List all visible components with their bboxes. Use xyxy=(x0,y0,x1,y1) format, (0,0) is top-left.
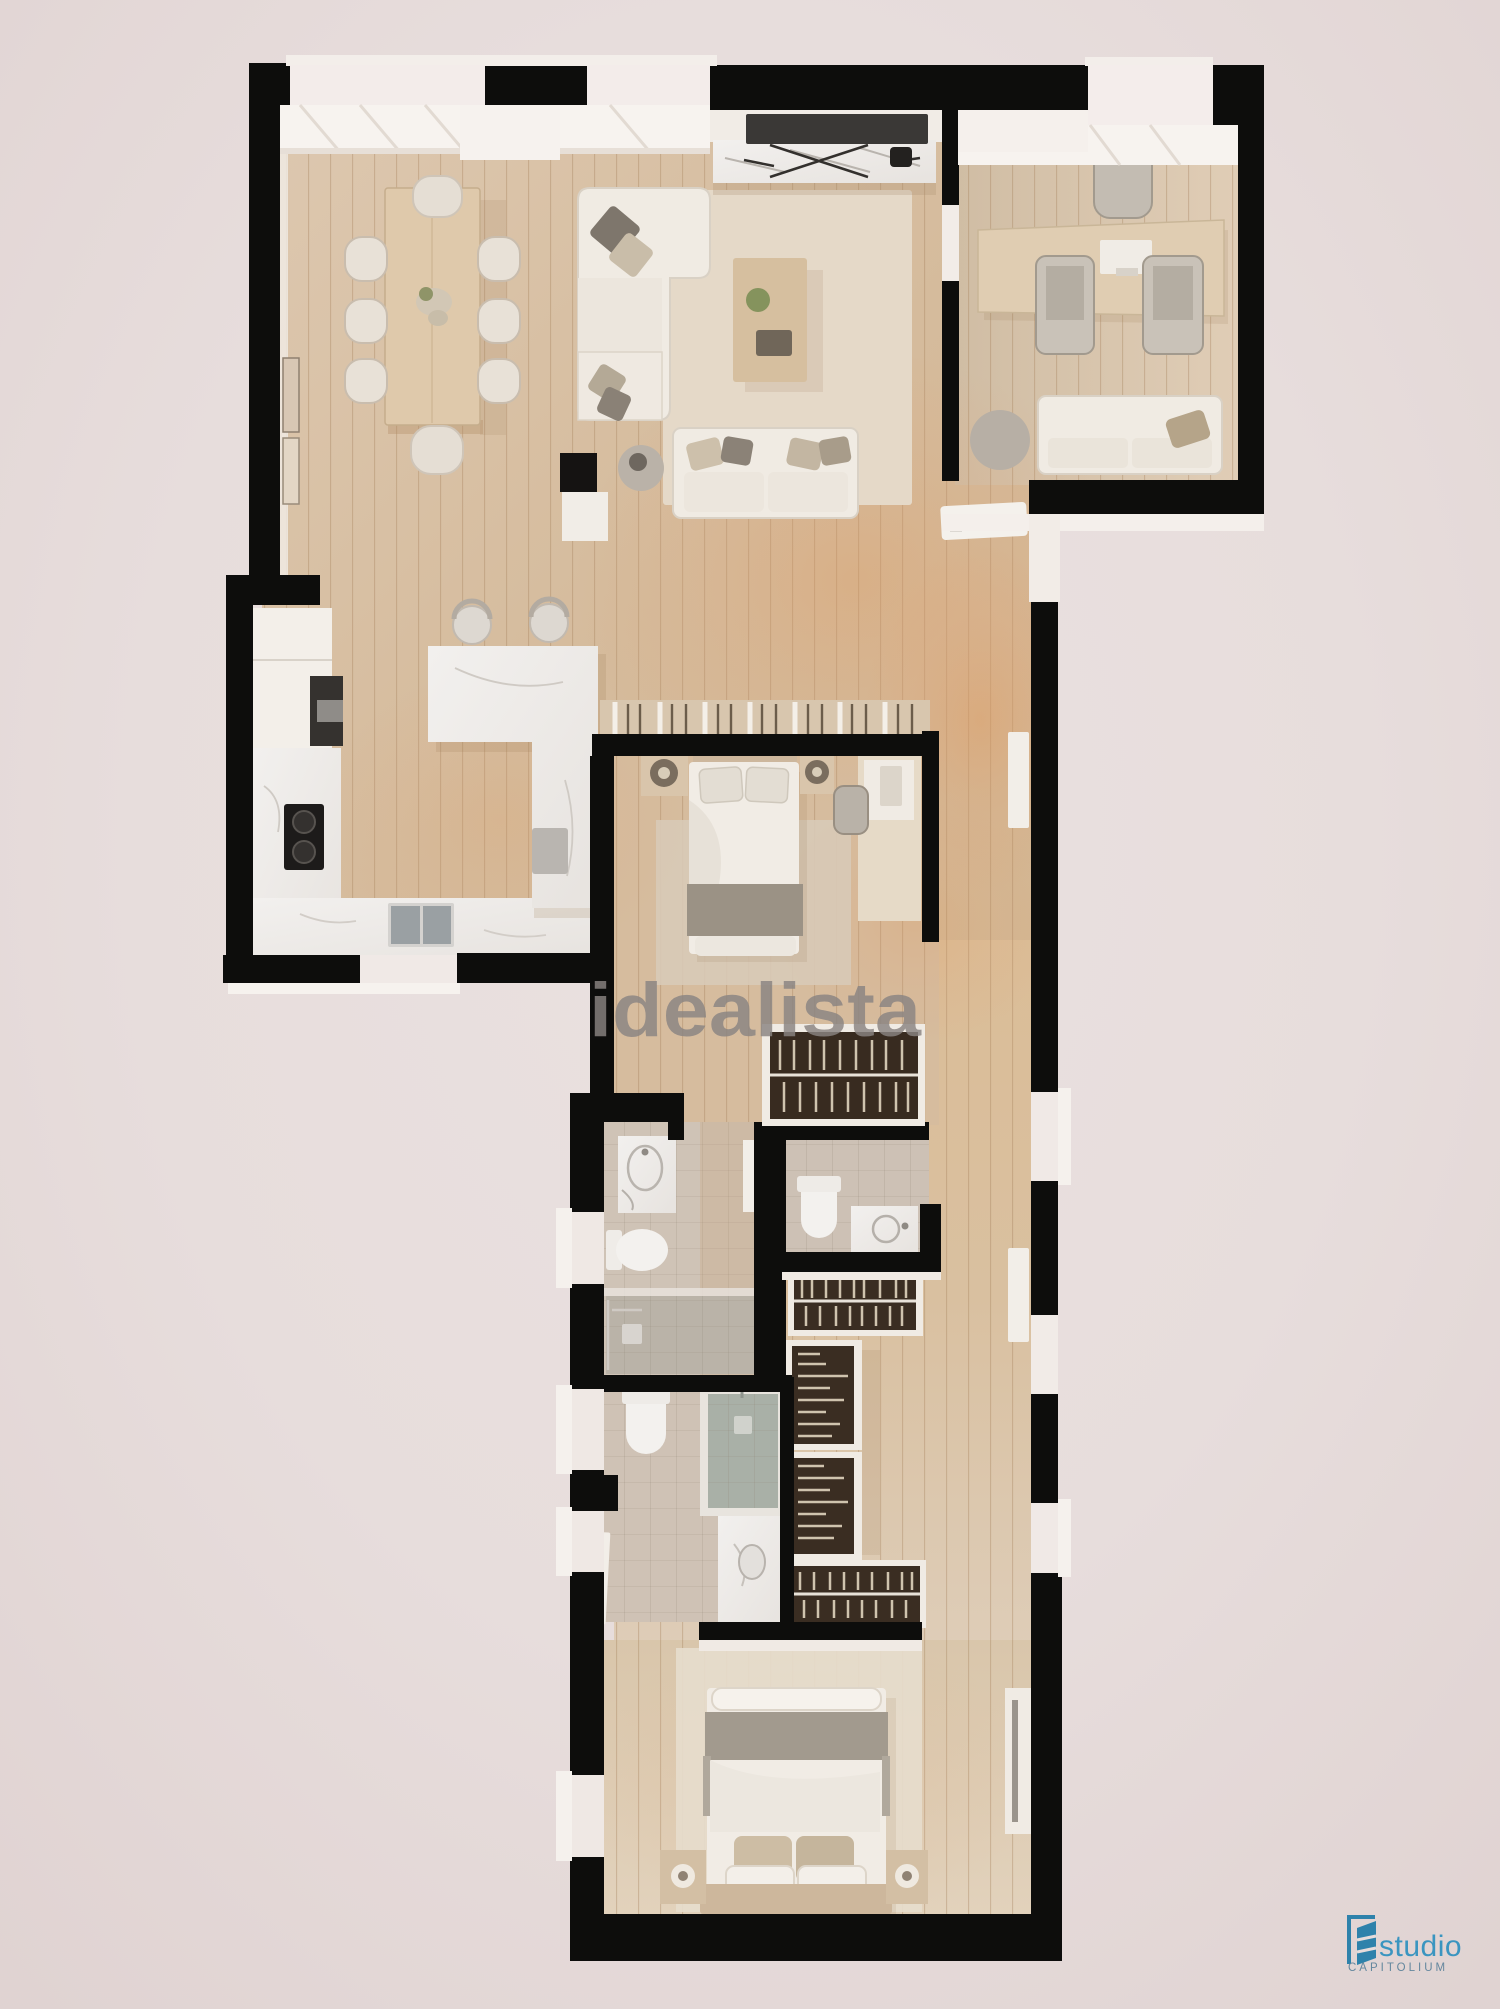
svg-text:studio: studio xyxy=(1379,1930,1462,1963)
svg-text:CAPITOLIUM: CAPITOLIUM xyxy=(1348,1962,1448,1974)
svg-text:idealista: idealista xyxy=(589,968,922,1053)
